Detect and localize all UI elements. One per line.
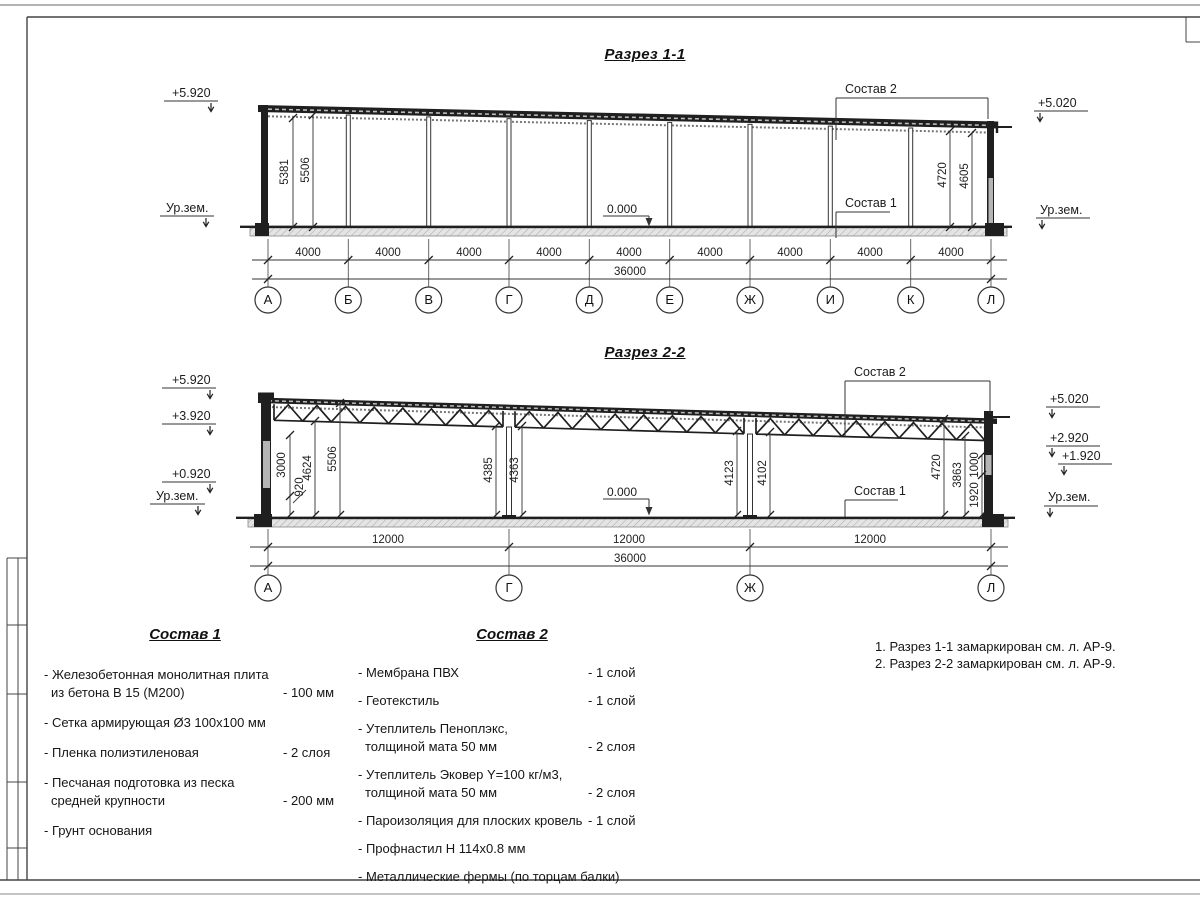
- legend1-item-value: - 2 слоя: [283, 744, 330, 762]
- s2-vdim-5506: 5506: [327, 446, 339, 472]
- s2-span-dim: 12000: [613, 534, 645, 546]
- s2-elev-r3: +1.920: [1062, 449, 1101, 463]
- legend2-item: - Профнастил Н 114x0.8 мм: [358, 840, 678, 858]
- s2-vdim-4720: 4720: [931, 454, 943, 480]
- legend1-item-text: - Сетка армирующая Ø3 100x100 мм: [44, 714, 374, 732]
- s2-vdim-4363: 4363: [509, 457, 521, 483]
- notes-block: 1. Разрез 1-1 замаркирован см. л. АР-9. …: [875, 638, 1116, 672]
- s2-axis-circles: [255, 575, 1004, 601]
- s1-span-dim: 4000: [616, 247, 642, 259]
- legend2-item: - Геотекстиль - 1 слой: [358, 692, 678, 710]
- s1-span-dim: 4000: [777, 247, 803, 259]
- s2-vdim-4624: 4624: [302, 455, 314, 481]
- s1-axis-g: Г: [496, 287, 522, 313]
- s1-axis-zh: Ж: [737, 287, 763, 313]
- note-1: 1. Разрез 1-1 замаркирован см. л. АР-9.: [875, 638, 1116, 655]
- s1-vdim-4605: 4605: [959, 163, 971, 189]
- legend1-item-text: - Грунт основания: [44, 822, 374, 840]
- s2-floor: [248, 519, 1008, 527]
- s2-zero-mark: [603, 499, 653, 516]
- legend2-item-value: - 2 слоя: [588, 784, 635, 802]
- s2-zero-label: 0.000: [607, 485, 637, 499]
- s2-elev-l1: +5.920: [172, 373, 211, 387]
- legend2-title: Состав 2: [476, 626, 548, 643]
- s2-span-dim: 12000: [854, 534, 886, 546]
- s1-elev-left-ground: Ур.зем.: [166, 201, 208, 215]
- s1-zero-label: 0.000: [607, 202, 637, 216]
- s1-vdim-5381: 5381: [279, 159, 291, 185]
- legend2-item-text: - Профнастил Н 114x0.8 мм: [358, 840, 678, 858]
- s2-axis-g: Г: [496, 575, 522, 601]
- legend2-item: - Мембрана ПВХ - 1 слой: [358, 664, 678, 682]
- s2-elev-l2: +3.920: [172, 409, 211, 423]
- legend2-item-text: - Утеплитель Эковер Y=100 кг/м3,: [358, 766, 678, 784]
- legend2-list: - Мембрана ПВХ - 1 слой - Геотекстиль - …: [358, 664, 678, 896]
- legend2-item-value: - 1 слой: [588, 812, 636, 830]
- legend1-title: Состав 1: [149, 626, 221, 643]
- s2-axis-l: Л: [978, 575, 1004, 601]
- s2-leader-top-label: Состав 2: [854, 365, 906, 379]
- s2-vdim-3863: 3863: [952, 462, 964, 488]
- s1-axis-v: В: [416, 287, 442, 313]
- s1-span-dim: 4000: [938, 247, 964, 259]
- s1-span-dim: 4000: [857, 247, 883, 259]
- legend2-item: - Утеплитель Эковер Y=100 кг/м3, толщино…: [358, 766, 678, 802]
- s1-leader-top-label: Состав 2: [845, 82, 897, 96]
- s2-elev-r1: +5.020: [1050, 392, 1089, 406]
- s2-elev-l4: Ур.зем.: [156, 489, 198, 503]
- s1-zero-mark: [603, 216, 653, 227]
- legend2-item-value: - 2 слоя: [588, 738, 635, 756]
- legend1-item-text: - Песчаная подготовка из песка: [44, 774, 374, 792]
- s2-vdim-4102: 4102: [757, 460, 769, 486]
- s2-columns: [507, 427, 753, 518]
- s2-span-dim: 12000: [372, 534, 404, 546]
- s2-vdim-4123: 4123: [724, 460, 736, 486]
- s1-left-wall: [261, 105, 268, 227]
- s1-elev-right-top: +5.020: [1038, 96, 1077, 110]
- s1-axis-l: Л: [978, 287, 1004, 313]
- s2-vdim-4385: 4385: [483, 457, 495, 483]
- s1-elev-right-ground: Ур.зем.: [1040, 203, 1082, 217]
- s1-leader-bottom-label: Состав 1: [845, 196, 897, 210]
- s2-vdim-3000: 3000: [276, 452, 288, 478]
- section-1-title: Разрез 1-1: [604, 46, 685, 63]
- s2-elev-l3: +0.920: [172, 467, 211, 481]
- s1-span-dim: 4000: [295, 247, 321, 259]
- s2-leader-bottom-label: Состав 1: [854, 484, 906, 498]
- legend1-item: - Пленка полиэтиленовая - 2 слоя: [44, 744, 374, 762]
- legend2-item-text: - Металлические фермы (по торцам балки): [358, 868, 678, 886]
- section-2-title: Разрез 2-2: [604, 344, 685, 361]
- legend1-item: - Железобетонная монолитная плита из бет…: [44, 666, 374, 702]
- s1-axis-e: Е: [657, 287, 683, 313]
- s1-span-dim: 4000: [697, 247, 723, 259]
- legend2-item: - Металлические фермы (по торцам балки): [358, 868, 678, 886]
- s2-axis-a: А: [255, 575, 281, 601]
- s1-axis-k: К: [898, 287, 924, 313]
- drawing-sheet: Разрез 1-1 +5.920 Ур.зем. +5.020 Ур.зем.…: [0, 0, 1200, 900]
- s1-axis-d: Д: [576, 287, 602, 313]
- s2-vdim-1920: 1920: [969, 482, 981, 508]
- s2-elev-r2: +2.920: [1050, 431, 1089, 445]
- legend2-item: - Пароизоляция для плоских кровель - 1 с…: [358, 812, 678, 830]
- legend1-item-value: - 100 мм: [283, 684, 334, 702]
- legend1-item: - Грунт основания: [44, 822, 374, 840]
- s1-axis-i: И: [817, 287, 843, 313]
- s2-elev-r4: Ур.зем.: [1048, 490, 1090, 504]
- legend1-item: - Сетка армирующая Ø3 100x100 мм: [44, 714, 374, 732]
- s1-total-dim: 36000: [614, 266, 646, 278]
- s1-axis-circles: [255, 287, 1004, 313]
- s1-span-dim: 4000: [375, 247, 401, 259]
- note-2: 2. Разрез 2-2 замаркирован см. л. АР-9.: [875, 655, 1116, 672]
- legend1-item: - Песчаная подготовка из песка средней к…: [44, 774, 374, 810]
- s1-span-dim: 4000: [536, 247, 562, 259]
- s2-total-dim: 36000: [614, 553, 646, 565]
- s1-axis-a: А: [255, 287, 281, 313]
- legend2-item: - Утеплитель Пеноплэкс, толщиной мата 50…: [358, 720, 678, 756]
- legend1-item-value: - 200 мм: [283, 792, 334, 810]
- legend2-item-text: - Утеплитель Пеноплэкс,: [358, 720, 678, 738]
- s2-vdim-1000: 1000: [969, 452, 981, 478]
- s1-elev-left-top: +5.920: [172, 86, 211, 100]
- s1-axis-b: Б: [335, 287, 361, 313]
- legend1-list: - Железобетонная монолитная плита из бет…: [44, 666, 374, 852]
- s2-axis-zh: Ж: [737, 575, 763, 601]
- s1-vdim-4720: 4720: [937, 162, 949, 188]
- legend2-item-value: - 1 слой: [588, 664, 636, 682]
- legend2-item-value: - 1 слой: [588, 692, 636, 710]
- s1-span-dim: 4000: [456, 247, 482, 259]
- s1-vdim-5506: 5506: [300, 157, 312, 183]
- s1-floor: [250, 228, 1007, 236]
- legend1-item-text: - Железобетонная монолитная плита: [44, 666, 374, 684]
